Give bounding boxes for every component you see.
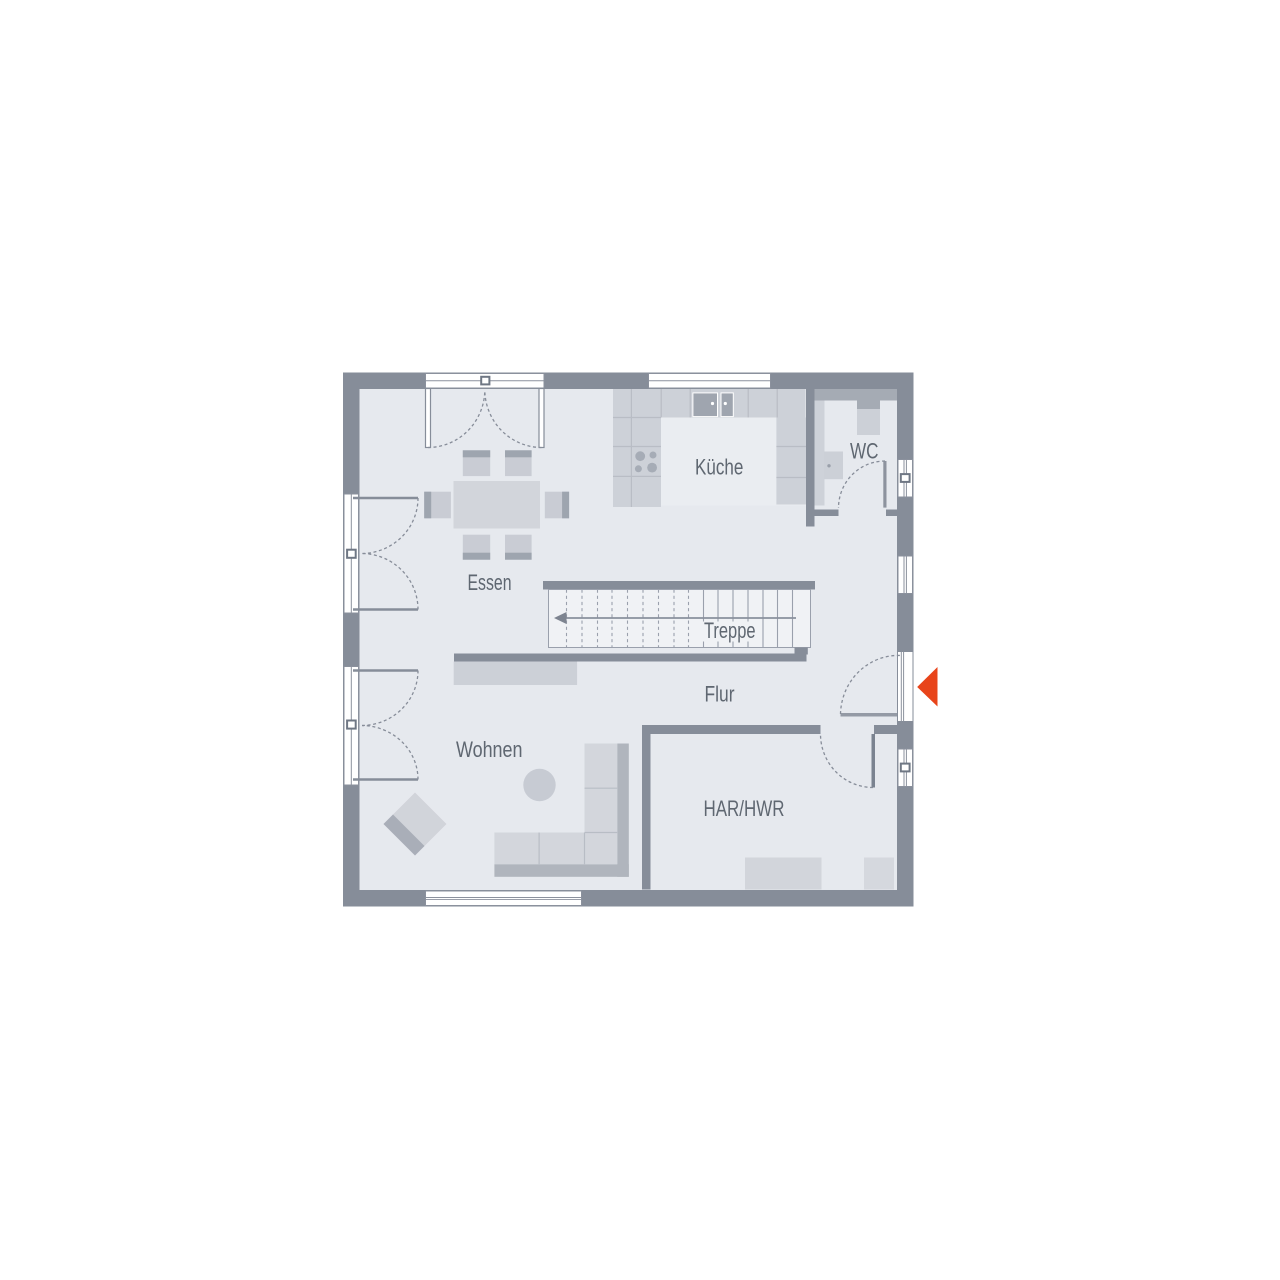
svg-text:Küche: Küche bbox=[695, 455, 743, 480]
svg-text:Essen: Essen bbox=[468, 570, 512, 595]
svg-text:WC: WC bbox=[850, 439, 879, 464]
svg-text:Wohnen: Wohnen bbox=[456, 737, 523, 762]
svg-text:Flur: Flur bbox=[705, 682, 735, 707]
svg-text:Treppe: Treppe bbox=[704, 618, 756, 643]
svg-text:HAR/HWR: HAR/HWR bbox=[704, 796, 785, 821]
